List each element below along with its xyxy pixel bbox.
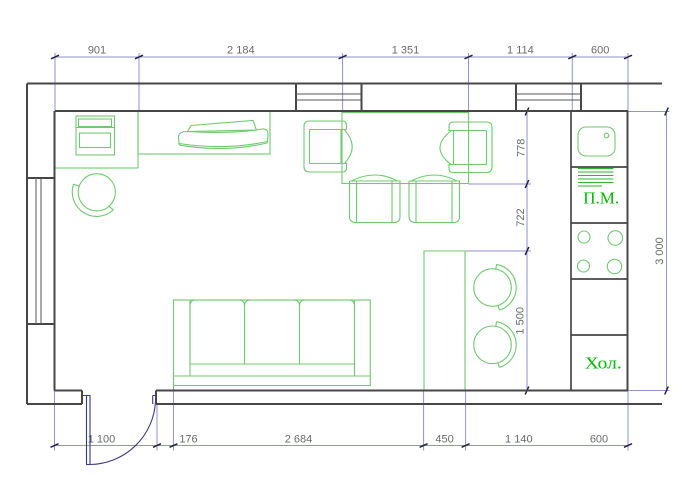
svg-text:778: 778 (516, 139, 528, 157)
svg-text:П.М.: П.М. (583, 189, 619, 208)
svg-text:722: 722 (515, 208, 527, 226)
svg-text:1 500: 1 500 (515, 307, 527, 335)
svg-text:1 100: 1 100 (88, 434, 116, 446)
svg-text:600: 600 (591, 45, 609, 57)
svg-text:3 000: 3 000 (654, 237, 666, 265)
svg-text:2 684: 2 684 (285, 434, 313, 446)
svg-text:450: 450 (435, 434, 453, 446)
svg-text:Хол.: Хол. (585, 353, 622, 372)
svg-text:2 184: 2 184 (227, 45, 255, 57)
svg-text:1 351: 1 351 (392, 45, 420, 57)
svg-text:901: 901 (88, 45, 106, 57)
svg-text:600: 600 (590, 434, 608, 446)
svg-text:176: 176 (179, 434, 197, 446)
svg-text:1 140: 1 140 (505, 434, 533, 446)
svg-text:1 114: 1 114 (507, 45, 534, 57)
